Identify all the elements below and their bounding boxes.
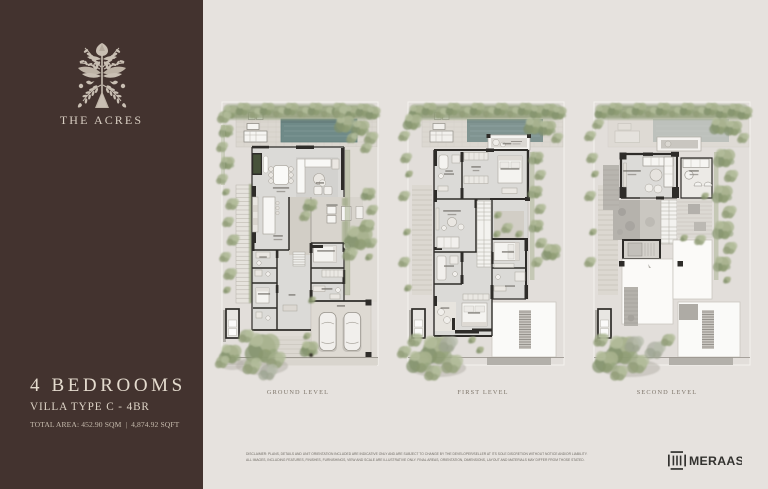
- svg-text:MERAAS: MERAAS: [689, 454, 742, 468]
